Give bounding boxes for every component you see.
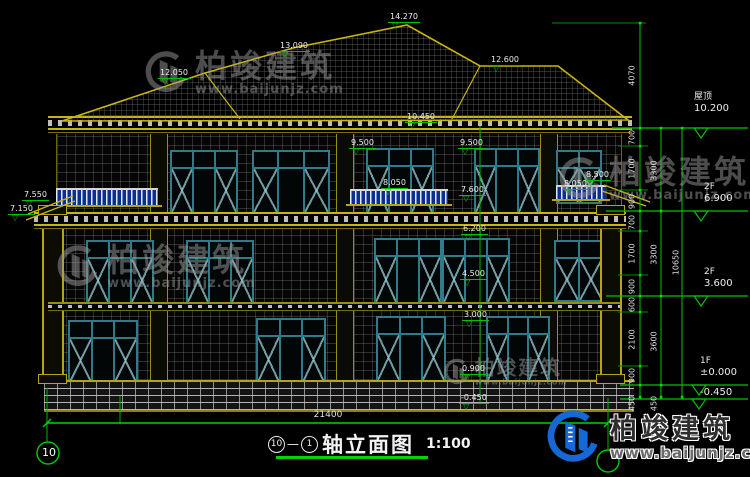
elevation-marker: 8.050▽ xyxy=(562,171,589,196)
elevation-marker: 6.200▽ xyxy=(461,216,488,241)
dimension-text: 10650 xyxy=(672,241,681,285)
watermark-url: www.baijunjz.com xyxy=(195,82,344,98)
elevation-triangle-icon: ▽ xyxy=(463,404,489,410)
axis-bubble: 10 xyxy=(41,446,57,459)
watermark: 柏竣建筑 www.baijunjz.com xyxy=(54,244,256,292)
elevation-marker: 7.150▽ xyxy=(8,196,35,221)
brand-url: www.baijunjz.com xyxy=(610,444,750,462)
level-marker: 屋顶10.200 xyxy=(694,92,729,114)
elevation-triangle-icon: ▽ xyxy=(462,149,485,155)
elevation-marker: 0.900▽ xyxy=(460,356,487,381)
brand-logo: 柏竣建筑 www.baijunjz.com xyxy=(542,410,750,468)
elevation-triangle-icon: ▽ xyxy=(12,215,35,221)
elevation-marker: 10.450▽ xyxy=(405,104,437,129)
level-marker: 1F±0.000 xyxy=(700,356,737,378)
level-marker: 2F6.900 xyxy=(704,182,733,204)
elevation-marker: 8.050▽ xyxy=(381,170,408,195)
elevation-marker: 4.500▽ xyxy=(460,261,487,286)
elevation-triangle-icon: ▽ xyxy=(282,52,310,58)
brand-logo-icon xyxy=(542,410,602,468)
dimension-text: 4070 xyxy=(628,54,637,98)
title-underline xyxy=(276,456,428,459)
watermark-name: 柏竣建筑 xyxy=(107,244,256,276)
dimension-text: 21400 xyxy=(300,410,356,420)
axis-bubble: 1 xyxy=(301,436,318,453)
elevation-triangle-icon: ▽ xyxy=(385,189,408,195)
elevation-marker: 9.500▽ xyxy=(458,130,485,155)
dimension-text: 3300 xyxy=(650,149,659,193)
elevation-triangle-icon: ▽ xyxy=(464,280,487,286)
linework-layer xyxy=(0,0,750,477)
elevation-triangle-icon: ▽ xyxy=(493,66,521,72)
elevation-triangle-icon: ▽ xyxy=(162,79,190,85)
drawing-title-block: 10 — 1 轴立面图 1:100 xyxy=(268,429,471,459)
elevation-marker: 14.270▽ xyxy=(388,4,420,29)
elevation-triangle-icon: ▽ xyxy=(588,181,611,187)
elevation-triangle-icon: ▽ xyxy=(353,149,376,155)
watermark-logo-icon xyxy=(54,245,100,291)
scale-label: 1:100 xyxy=(426,436,471,452)
elevation-triangle-icon: ▽ xyxy=(463,196,486,202)
watermark-name: 柏竣建筑 xyxy=(475,358,567,378)
watermark-name: 柏竣建筑 xyxy=(195,50,344,82)
axis-bubble: 10 xyxy=(268,436,285,453)
elevation-marker: 12.600▽ xyxy=(489,47,521,72)
watermark-url: www.baijunjz.com xyxy=(107,276,256,292)
brand-name: 柏竣建筑 xyxy=(610,416,750,444)
dimension-text: 3300 xyxy=(650,233,659,277)
dimension-text: 3600 xyxy=(650,320,659,364)
level-marker: -0.450 xyxy=(700,387,732,398)
elevation-triangle-icon: ▽ xyxy=(465,235,488,241)
elevation-marker: 3.000▽ xyxy=(462,302,489,327)
elevation-triangle-icon: ▽ xyxy=(566,190,589,196)
elevation-marker: 13.090▽ xyxy=(278,33,310,58)
elevation-triangle-icon: ▽ xyxy=(466,321,489,327)
elevation-marker: 7.600▽ xyxy=(459,177,486,202)
drawing-title: 轴立面图 xyxy=(322,429,414,459)
axis-dash: — xyxy=(287,437,299,451)
elevation-triangle-icon: ▽ xyxy=(464,375,487,381)
cad-canvas: 柏竣建筑 www.baijunjz.com 柏竣建筑 www.baijunjz.… xyxy=(0,0,750,477)
level-marker: 2F3.600 xyxy=(704,267,733,289)
elevation-marker: -0.450▽ xyxy=(459,385,489,410)
elevation-triangle-icon: ▽ xyxy=(392,23,420,29)
elevation-marker: 12.050▽ xyxy=(158,60,190,85)
elevation-marker: 9.500▽ xyxy=(349,130,376,155)
elevation-triangle-icon: ▽ xyxy=(409,123,437,129)
